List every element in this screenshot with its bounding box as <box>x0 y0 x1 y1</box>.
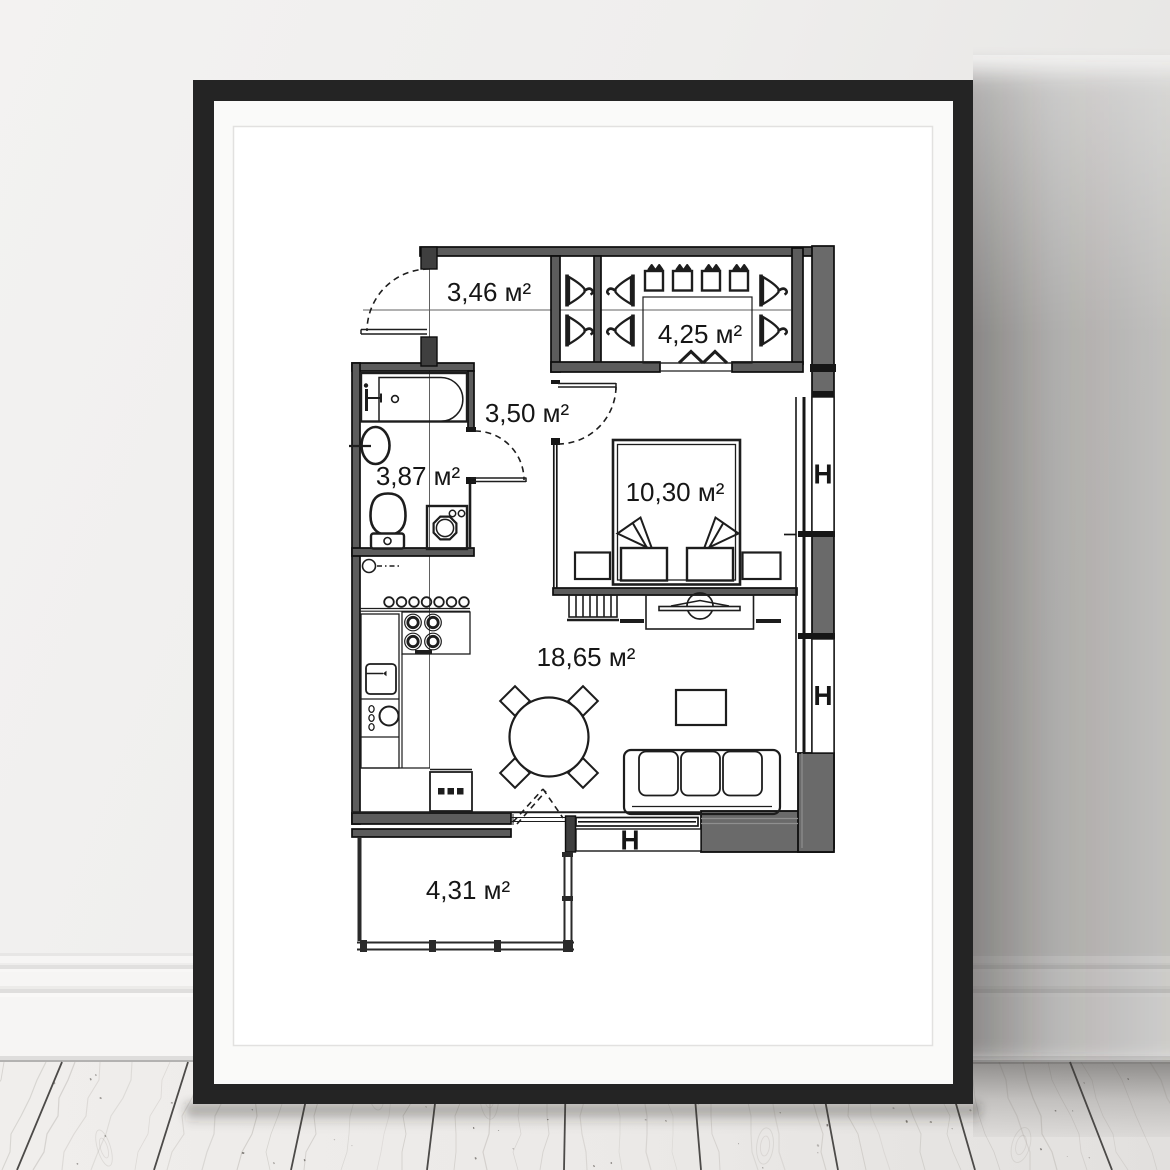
svg-text:Н: Н <box>814 680 833 711</box>
svg-text:3,87 м²: 3,87 м² <box>376 461 461 491</box>
svg-text:4,25 м²: 4,25 м² <box>658 319 743 349</box>
svg-text:18,65 м²: 18,65 м² <box>537 642 636 672</box>
svg-text:4,31 м²: 4,31 м² <box>426 875 511 905</box>
svg-text:Н: Н <box>621 825 640 856</box>
svg-text:10,30 м²: 10,30 м² <box>626 477 725 507</box>
svg-text:3,50 м²: 3,50 м² <box>485 398 570 428</box>
svg-text:Н: Н <box>814 459 833 490</box>
svg-text:3,46 м²: 3,46 м² <box>447 277 532 307</box>
